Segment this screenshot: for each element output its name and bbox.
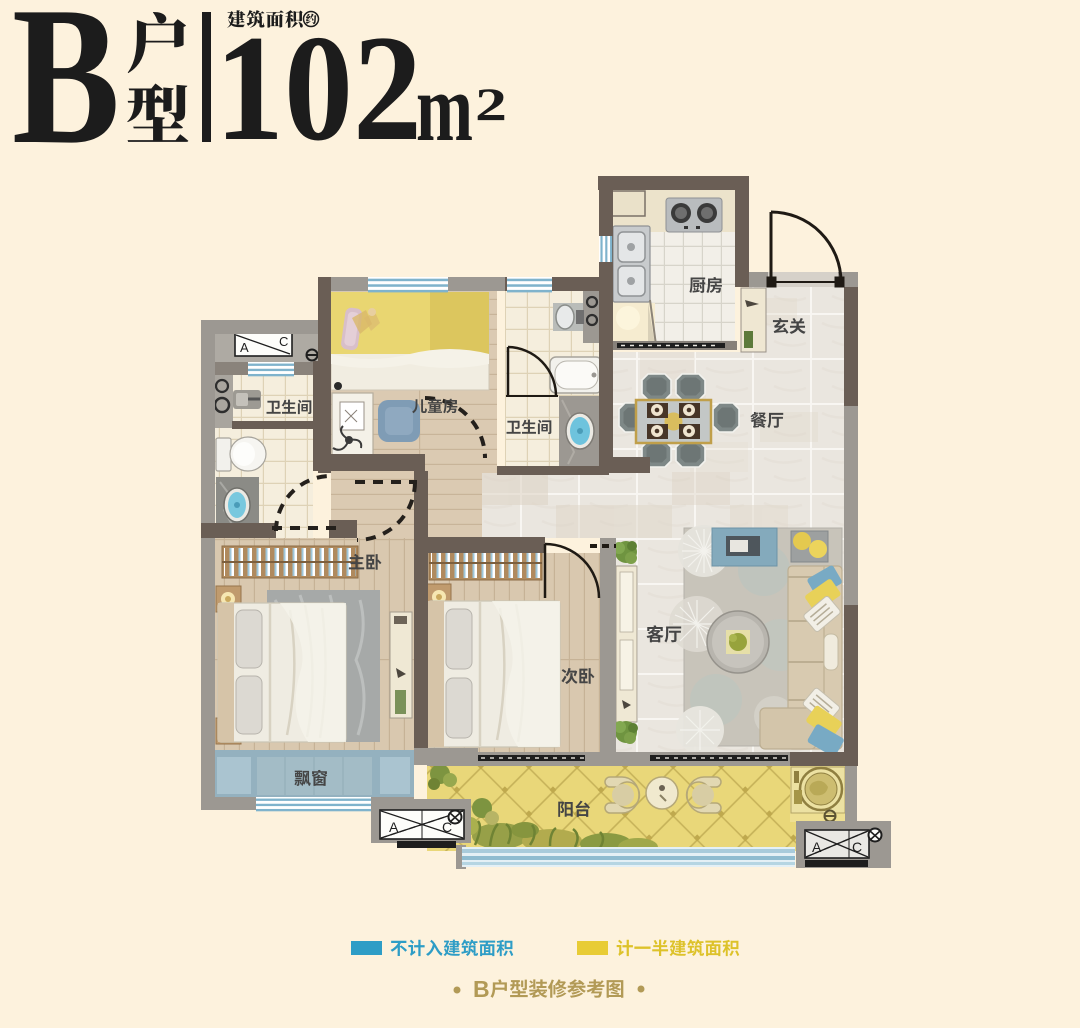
svg-text:A: A: [389, 819, 399, 835]
svg-text:A: A: [240, 340, 249, 355]
svg-text:C: C: [279, 334, 288, 349]
svg-text:B: B: [12, 0, 120, 185]
svg-text:102: 102: [215, 4, 422, 172]
svg-text:2: 2: [475, 79, 507, 131]
svg-text:A: A: [812, 839, 822, 855]
svg-text:B: B: [473, 976, 490, 1002]
svg-text:m: m: [416, 54, 473, 161]
svg-text:C: C: [852, 839, 862, 855]
